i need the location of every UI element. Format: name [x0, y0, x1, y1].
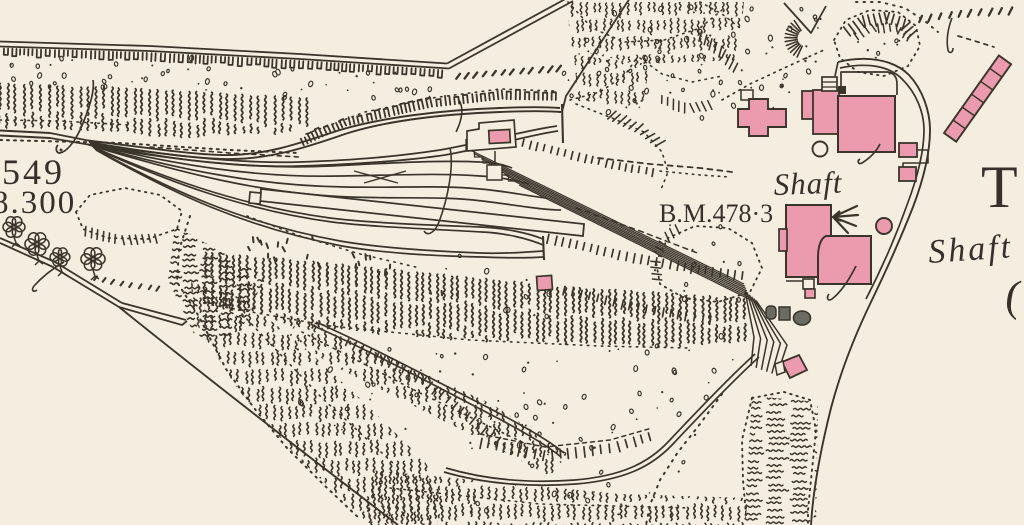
svg-text:T: T [981, 154, 1018, 220]
svg-text:Shaft: Shaft [773, 165, 843, 202]
svg-text:8.300: 8.300 [0, 185, 76, 221]
svg-text:Shaft: Shaft [927, 228, 1014, 271]
svg-text:B.M.478·3: B.M.478·3 [659, 199, 773, 228]
